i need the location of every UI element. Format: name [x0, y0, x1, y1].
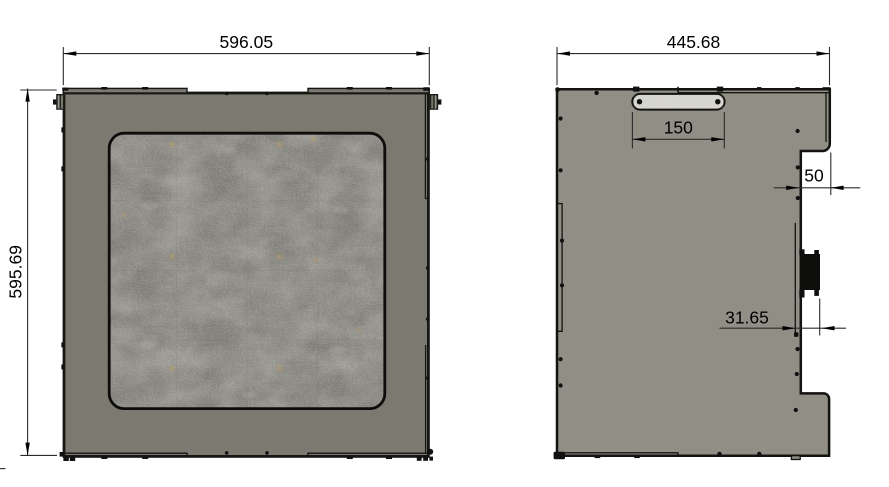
svg-text:150: 150 [664, 118, 693, 138]
svg-text:595.69: 595.69 [6, 245, 26, 299]
svg-text:31.65: 31.65 [725, 308, 769, 328]
svg-text:596.05: 596.05 [220, 32, 274, 52]
svg-text:50: 50 [804, 166, 824, 186]
svg-text:445.68: 445.68 [667, 32, 721, 52]
